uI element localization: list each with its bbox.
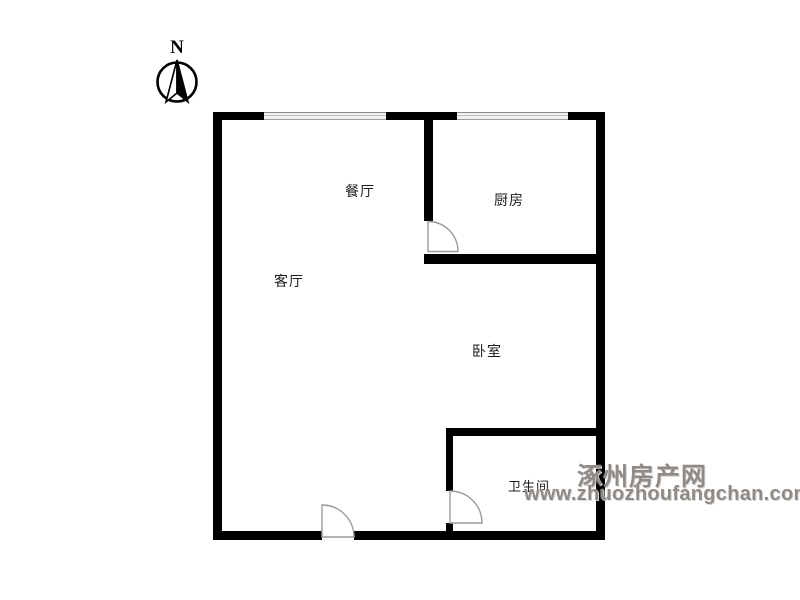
door-kitchen-icon: [428, 222, 458, 252]
door-entry-icon: [322, 505, 354, 537]
watermark-site-url: www.zhuozhoufangchan.com: [524, 483, 800, 506]
door-bathroom-icon: [450, 491, 482, 523]
door-arcs: [0, 0, 800, 600]
floorplan-canvas: N 餐厅 厨房 客厅 卧室 卫生间 涿州房产网 www.zhuozhoufang…: [0, 0, 800, 600]
